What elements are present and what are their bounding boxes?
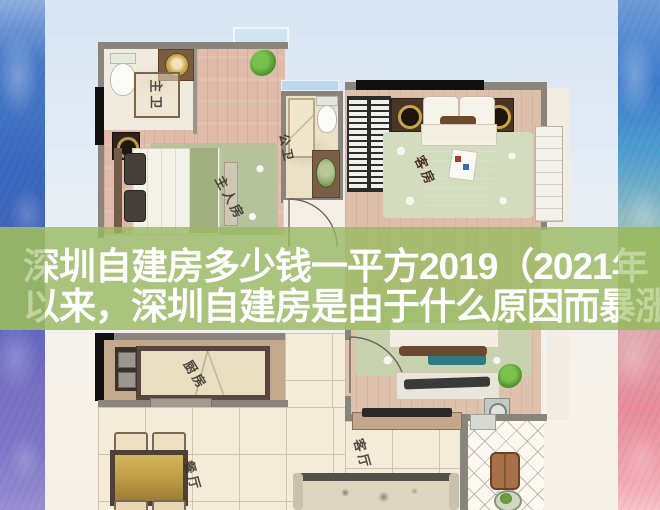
balcony-cabinet xyxy=(470,414,496,430)
title-line-1: 深圳自建房多少钱一平方2019（2021年 xyxy=(23,247,648,287)
sink-basin xyxy=(316,158,336,188)
bed-headboard xyxy=(114,148,122,233)
title-band-over-left-border xyxy=(0,227,45,330)
toilet xyxy=(110,63,136,96)
sofa xyxy=(299,481,453,510)
wall xyxy=(460,420,468,510)
sofa-armrest xyxy=(449,473,459,510)
stove-burner xyxy=(118,372,136,388)
title-band-over-right-border xyxy=(618,227,660,330)
note-mark xyxy=(455,156,461,162)
tv xyxy=(362,408,452,417)
nightstand-lamp xyxy=(398,105,422,129)
dining-table xyxy=(110,450,188,506)
ac-panel xyxy=(535,126,563,222)
hall-floor xyxy=(285,333,345,407)
bed-blanket xyxy=(190,148,218,233)
chair xyxy=(152,500,186,510)
stove-burner xyxy=(118,352,136,368)
wall xyxy=(98,42,288,49)
title-line-2: 以来，深圳自建房是由于什么原因而暴涨 xyxy=(23,287,660,327)
pillow xyxy=(124,153,146,185)
note-mark xyxy=(463,164,469,170)
room-name-plate: 主卫 xyxy=(134,72,180,118)
balcony-chair xyxy=(490,452,520,490)
toilet xyxy=(317,105,337,133)
chair xyxy=(114,500,148,510)
bed-bench xyxy=(399,346,487,356)
wardrobe xyxy=(347,96,369,192)
article-header-image: 主卫 主人房 公卫 客房 xyxy=(0,0,660,510)
room-label-master-bath: 主卫 xyxy=(147,79,166,111)
window xyxy=(281,80,339,91)
wall xyxy=(98,333,288,340)
sofa-armrest xyxy=(293,473,303,510)
planter-plant xyxy=(500,493,512,504)
pillow xyxy=(124,190,146,222)
